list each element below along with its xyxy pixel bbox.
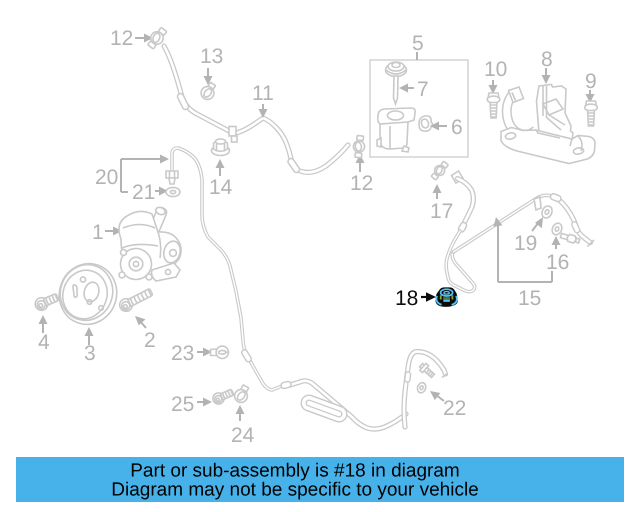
svg-text:Part or sub-assembly is #18 in: Part or sub-assembly is #18 in diagram (130, 461, 459, 482)
svg-text:24: 24 (231, 424, 255, 447)
svg-text:2: 2 (144, 329, 156, 352)
svg-text:17: 17 (430, 200, 453, 223)
svg-text:25: 25 (171, 393, 194, 416)
svg-text:23: 23 (171, 342, 194, 365)
svg-text:8: 8 (541, 48, 553, 71)
svg-text:7: 7 (417, 78, 429, 101)
svg-text:9: 9 (585, 70, 597, 93)
svg-text:5: 5 (412, 32, 424, 55)
svg-text:22: 22 (443, 397, 466, 420)
svg-text:18: 18 (395, 287, 418, 310)
svg-text:6: 6 (451, 116, 463, 139)
svg-text:12: 12 (350, 172, 373, 195)
svg-text:15: 15 (518, 287, 541, 310)
svg-text:10: 10 (484, 58, 507, 81)
svg-text:Diagram may not be specific to: Diagram may not be specific to your vehi… (111, 480, 479, 501)
svg-text:14: 14 (209, 176, 233, 199)
svg-text:16: 16 (546, 251, 569, 274)
svg-text:21: 21 (132, 181, 155, 204)
svg-text:11: 11 (252, 82, 274, 105)
svg-text:12: 12 (110, 27, 133, 50)
svg-text:13: 13 (200, 45, 223, 68)
svg-text:20: 20 (95, 166, 118, 189)
svg-text:1: 1 (92, 221, 104, 244)
svg-text:4: 4 (38, 331, 50, 354)
svg-text:3: 3 (84, 342, 96, 365)
svg-text:19: 19 (514, 232, 537, 255)
